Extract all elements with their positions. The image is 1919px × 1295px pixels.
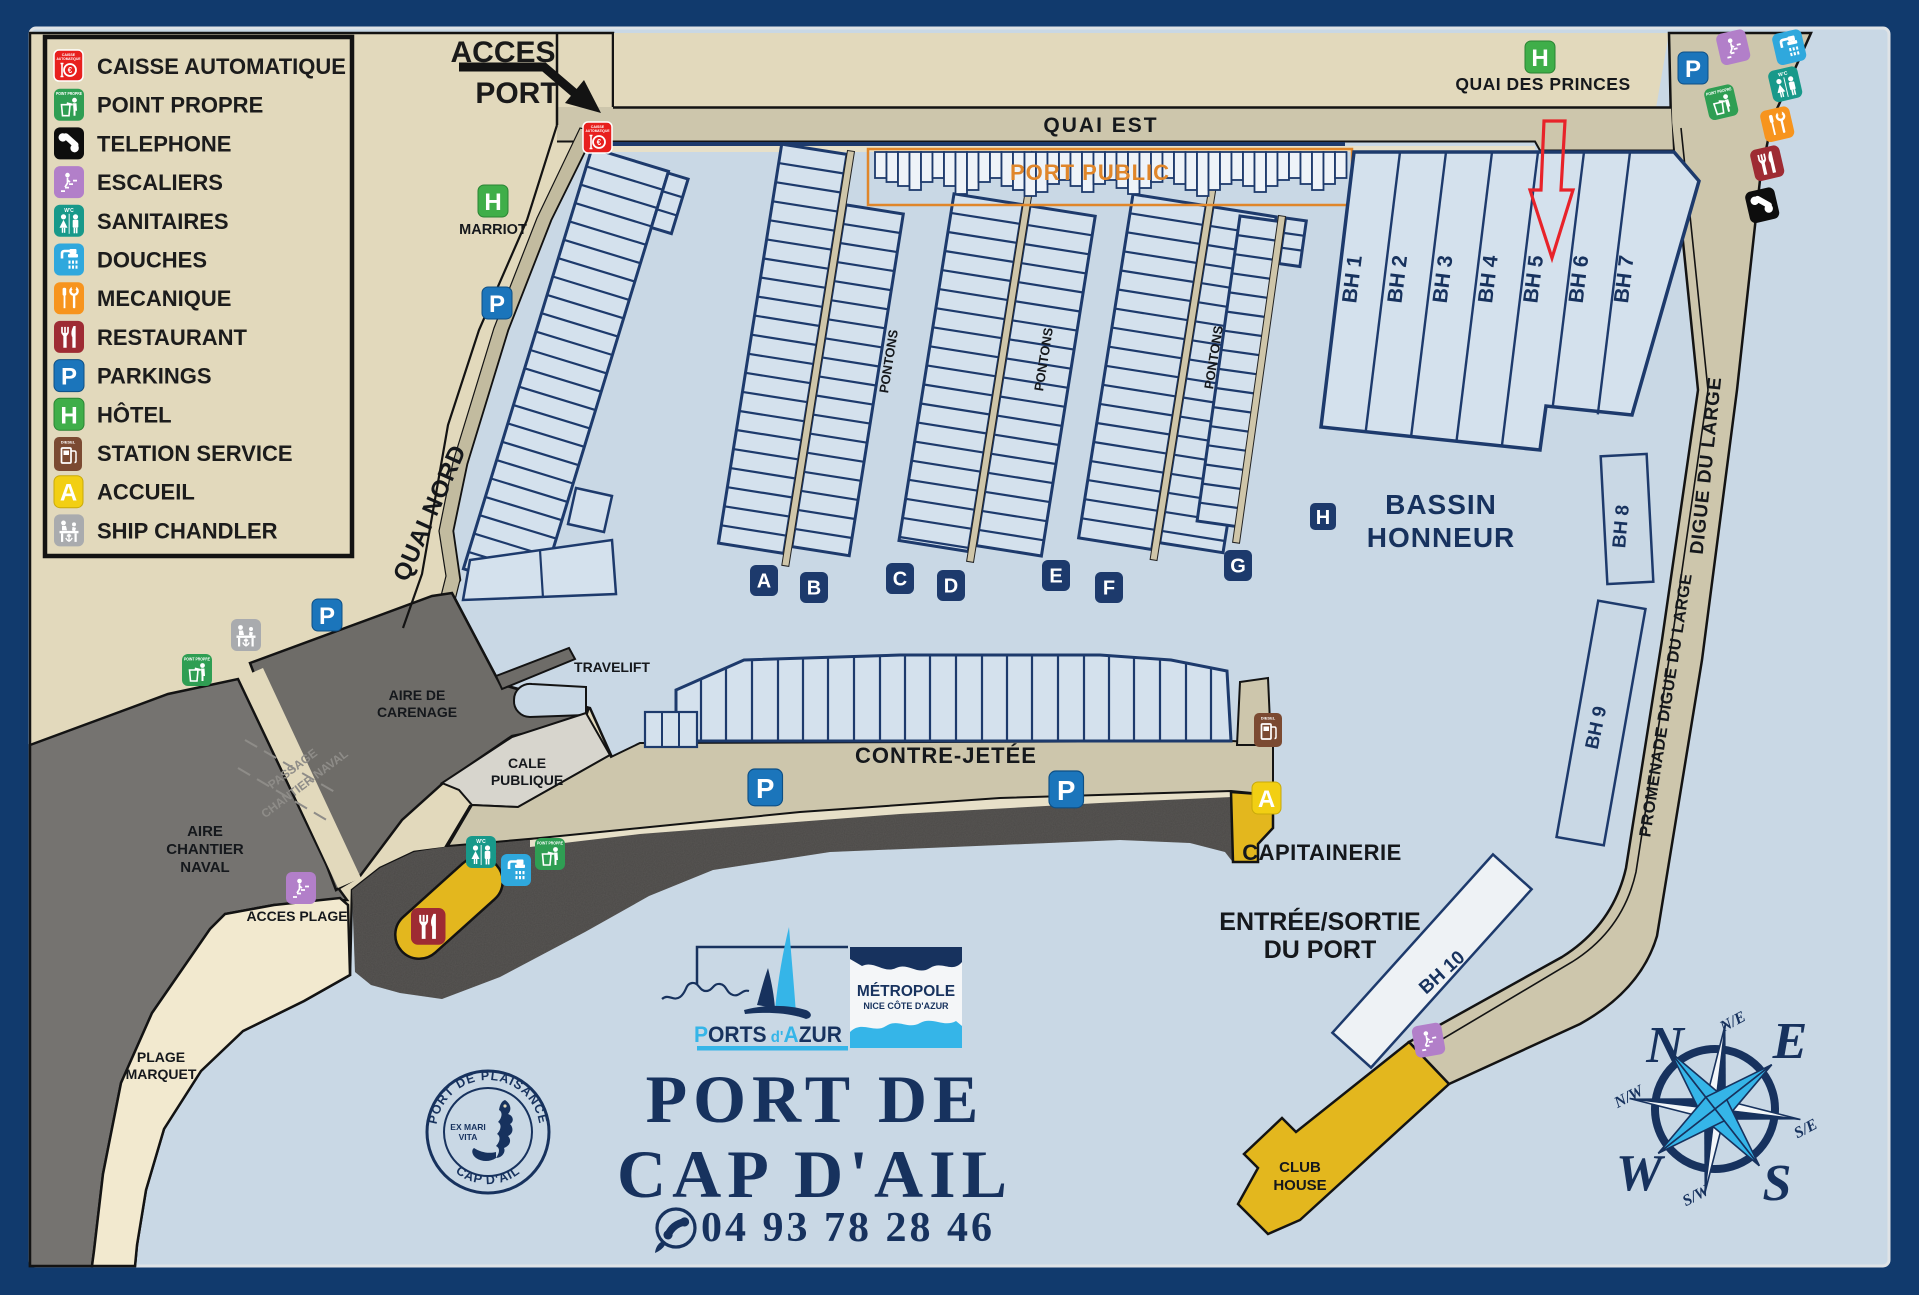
svg-text:CALE: CALE <box>508 755 546 771</box>
svg-text:EX MARI: EX MARI <box>450 1122 485 1132</box>
svg-text:PARKINGS: PARKINGS <box>97 364 212 389</box>
svg-text:04 93 78 28 46: 04 93 78 28 46 <box>701 1205 995 1251</box>
svg-text:PORT DE: PORT DE <box>646 1061 985 1137</box>
svg-text:NICE CÔTE D'AZUR: NICE CÔTE D'AZUR <box>863 1000 949 1011</box>
svg-text:MECANIQUE: MECANIQUE <box>97 286 231 311</box>
svg-text:G: G <box>1230 556 1246 578</box>
svg-text:S: S <box>1763 1155 1792 1212</box>
svg-text:QUAI EST: QUAI EST <box>1043 114 1158 137</box>
svg-text:N: N <box>1645 1017 1686 1074</box>
svg-text:CAPITAINERIE: CAPITAINERIE <box>1242 840 1402 865</box>
svg-text:STATION SERVICE: STATION SERVICE <box>97 441 293 466</box>
svg-text:DOUCHES: DOUCHES <box>97 248 207 273</box>
svg-text:MARQUET: MARQUET <box>126 1066 197 1082</box>
svg-text:ACCES PLAGE: ACCES PLAGE <box>246 908 347 924</box>
svg-text:CARENAGE: CARENAGE <box>377 704 457 720</box>
svg-text:C: C <box>893 569 907 591</box>
svg-text:CLUB: CLUB <box>1279 1159 1321 1176</box>
svg-text:ESCALIERS: ESCALIERS <box>97 170 223 195</box>
svg-text:CONTRE-JETÉE: CONTRE-JETÉE <box>855 743 1037 768</box>
svg-text:SANITAIRES: SANITAIRES <box>97 209 229 234</box>
svg-text:CHANTIER: CHANTIER <box>166 841 244 858</box>
svg-text:RESTAURANT: RESTAURANT <box>97 325 247 350</box>
svg-text:HOUSE: HOUSE <box>1273 1177 1326 1194</box>
svg-text:E: E <box>1772 1013 1808 1070</box>
svg-text:D: D <box>944 576 958 598</box>
svg-text:PUBLIQUE: PUBLIQUE <box>491 772 563 788</box>
svg-text:A: A <box>757 571 771 593</box>
svg-text:CAP D'AIL: CAP D'AIL <box>617 1136 1013 1212</box>
svg-text:W: W <box>1616 1145 1666 1202</box>
svg-text:POINT PROPRE: POINT PROPRE <box>97 93 263 118</box>
svg-text:MÉTROPOLE: MÉTROPOLE <box>857 983 955 1000</box>
svg-text:NAVAL: NAVAL <box>180 859 229 876</box>
svg-text:DU PORT: DU PORT <box>1264 936 1377 964</box>
svg-text:TRAVELIFT: TRAVELIFT <box>574 659 650 675</box>
svg-text:BASSIN: BASSIN <box>1385 489 1497 520</box>
svg-text:HONNEUR: HONNEUR <box>1367 522 1516 553</box>
svg-text:TELEPHONE: TELEPHONE <box>97 131 231 156</box>
svg-text:PORT: PORT <box>475 77 558 110</box>
svg-text:BH 8: BH 8 <box>1609 504 1634 549</box>
svg-text:PLAGE: PLAGE <box>137 1049 185 1065</box>
svg-text:CAISSE AUTOMATIQUE: CAISSE AUTOMATIQUE <box>97 54 346 79</box>
svg-text:B: B <box>807 578 821 600</box>
svg-text:ACCUEIL: ACCUEIL <box>97 480 195 505</box>
svg-text:VITA: VITA <box>459 1132 478 1142</box>
svg-text:QUAI DES PRINCES: QUAI DES PRINCES <box>1455 74 1630 94</box>
svg-text:AIRE: AIRE <box>187 823 223 840</box>
svg-text:SHIP CHANDLER: SHIP CHANDLER <box>97 518 278 543</box>
svg-text:AIRE DE: AIRE DE <box>389 687 446 703</box>
svg-text:ENTRÉE/SORTIE: ENTRÉE/SORTIE <box>1219 907 1420 936</box>
svg-text:PORT PUBLIC: PORT PUBLIC <box>1010 160 1170 185</box>
svg-text:MARRIOT: MARRIOT <box>459 222 527 238</box>
svg-text:F: F <box>1103 578 1115 600</box>
svg-text:HÔTEL: HÔTEL <box>97 402 172 427</box>
svg-text:E: E <box>1049 566 1062 588</box>
